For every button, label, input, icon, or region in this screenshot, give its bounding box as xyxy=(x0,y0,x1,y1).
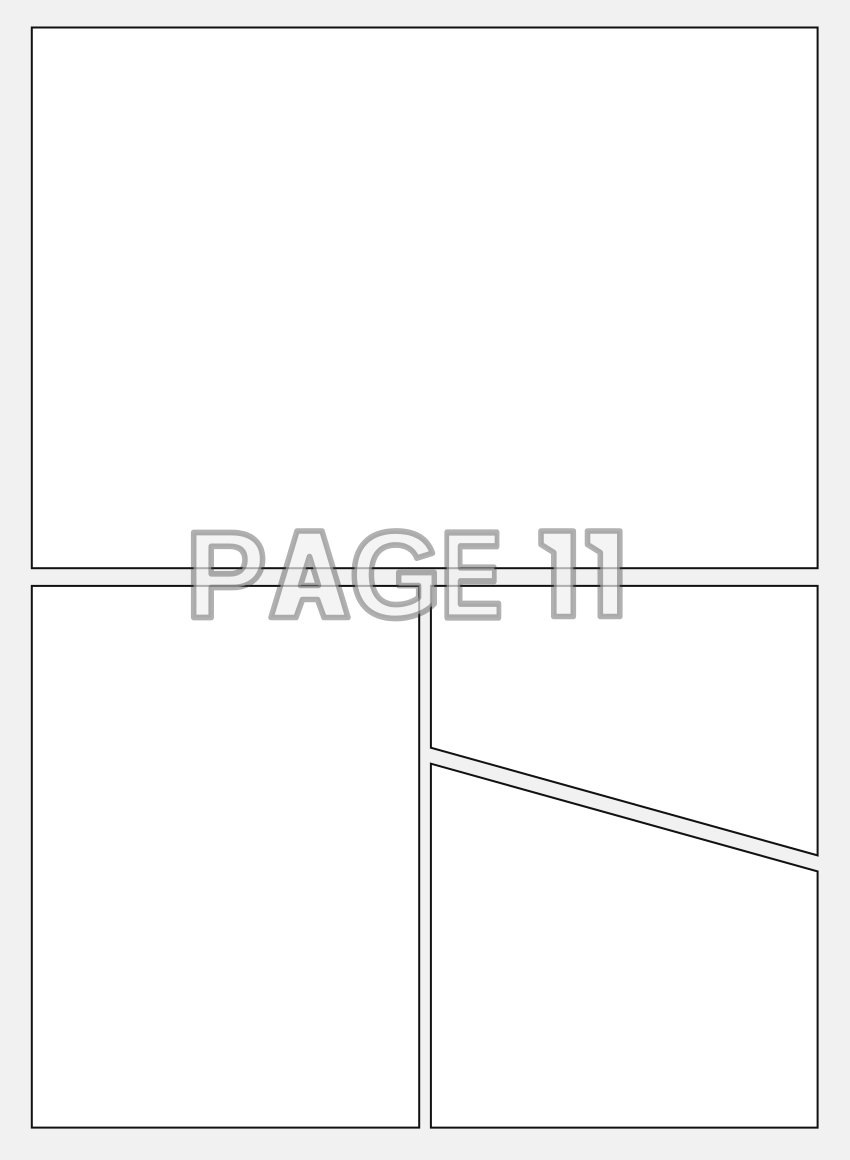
svg-text:G: G xyxy=(349,505,441,644)
svg-text:E: E xyxy=(441,507,503,645)
svg-text:P: P xyxy=(186,507,267,645)
